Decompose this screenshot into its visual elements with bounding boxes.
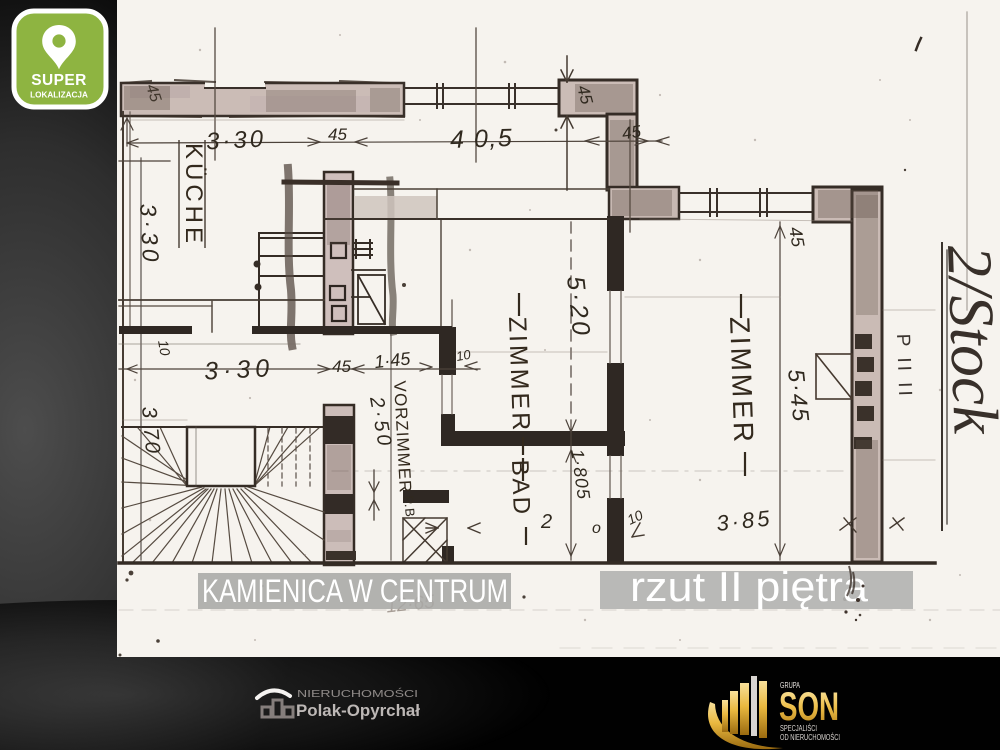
svg-text:P II II: P II II bbox=[892, 333, 915, 399]
svg-text:3·30: 3·30 bbox=[205, 125, 266, 155]
svg-text:P.B: P.B bbox=[401, 495, 418, 519]
svg-text:2/Stock: 2/Stock bbox=[934, 244, 1000, 436]
svg-text:OD NIERUCHOMOŚCI: OD NIERUCHOMOŚCI bbox=[780, 733, 840, 742]
svg-text:Polak-Opyrchał: Polak-Opyrchał bbox=[296, 701, 420, 720]
svg-text:o: o bbox=[592, 520, 601, 537]
svg-text:1·45: 1·45 bbox=[373, 348, 412, 372]
svg-text:10: 10 bbox=[155, 339, 173, 357]
svg-text:BAD: BAD bbox=[506, 459, 535, 517]
svg-text:3 70: 3 70 bbox=[137, 405, 164, 456]
svg-text:2: 2 bbox=[540, 511, 552, 533]
svg-text:KÜCHE: KÜCHE bbox=[180, 143, 207, 247]
svg-text:ZIMMER: ZIMMER bbox=[503, 316, 535, 434]
svg-text:45: 45 bbox=[621, 122, 643, 144]
svg-text:LOKALIZACJA: LOKALIZACJA bbox=[30, 91, 88, 100]
svg-text:45: 45 bbox=[332, 357, 351, 376]
svg-text:3·30: 3·30 bbox=[135, 203, 164, 266]
svg-text:SUPER: SUPER bbox=[31, 72, 86, 89]
svg-text:rzut II piętra: rzut II piętra bbox=[630, 563, 869, 610]
svg-text:ZIMMER: ZIMMER bbox=[724, 316, 759, 445]
svg-text:SON: SON bbox=[779, 685, 839, 729]
svg-text:45: 45 bbox=[328, 125, 347, 144]
svg-text:NIERUCHOMOŚCI: NIERUCHOMOŚCI bbox=[297, 687, 418, 700]
svg-text:SPECJALIŚCI: SPECJALIŚCI bbox=[780, 724, 817, 733]
svg-text:KAMIENICA W CENTRUM: KAMIENICA W CENTRUM bbox=[202, 573, 508, 609]
svg-text:3·30: 3·30 bbox=[203, 354, 274, 386]
svg-text:4 0,5: 4 0,5 bbox=[450, 124, 514, 154]
